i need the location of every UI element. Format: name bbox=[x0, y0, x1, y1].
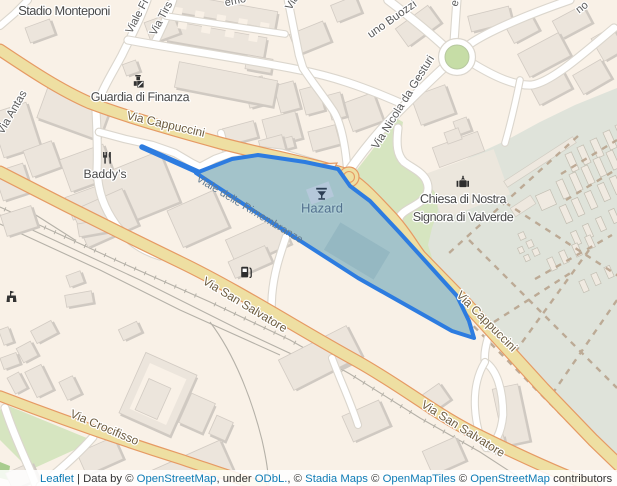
svg-text:Hazard: Hazard bbox=[301, 200, 343, 215]
svg-text:Stadio Monteponi: Stadio Monteponi bbox=[18, 3, 110, 18]
svg-text:Signora di Valverde: Signora di Valverde bbox=[413, 210, 514, 224]
svg-text:Guardia di Finanza: Guardia di Finanza bbox=[91, 90, 190, 104]
svg-text:Baddy’s: Baddy’s bbox=[83, 167, 126, 181]
svg-text:Leaflet | Data by © OpenStreet: Leaflet | Data by © OpenStreetMap, under… bbox=[40, 473, 612, 485]
svg-text:Chiesa di Nostra: Chiesa di Nostra bbox=[420, 192, 506, 206]
